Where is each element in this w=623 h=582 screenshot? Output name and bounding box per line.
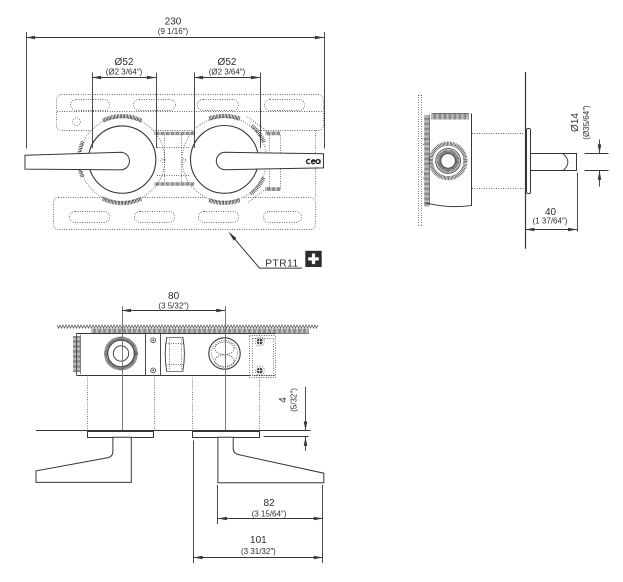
svg-text:(Ø2 3/64″): (Ø2 3/64″) <box>106 67 143 76</box>
svg-text:(3 15/64″): (3 15/64″) <box>252 509 287 518</box>
svg-text:(5/32″): (5/32″) <box>290 388 299 412</box>
svg-text:(1 37/64″): (1 37/64″) <box>533 216 568 225</box>
svg-text:(Ø35/64″): (Ø35/64″) <box>582 105 591 140</box>
svg-text:(Ø2 3/64″): (Ø2 3/64″) <box>209 67 246 76</box>
svg-text:(9 1/16″): (9 1/16″) <box>158 27 189 36</box>
svg-text:101: 101 <box>250 535 267 546</box>
svg-text:(3 5/32″): (3 5/32″) <box>158 301 189 310</box>
svg-text:82: 82 <box>263 498 275 509</box>
svg-text:4: 4 <box>278 397 289 403</box>
svg-text:PTR11: PTR11 <box>265 258 298 269</box>
svg-text:Ø14: Ø14 <box>570 113 581 132</box>
svg-text:(3 31/32″): (3 31/32″) <box>241 547 276 556</box>
